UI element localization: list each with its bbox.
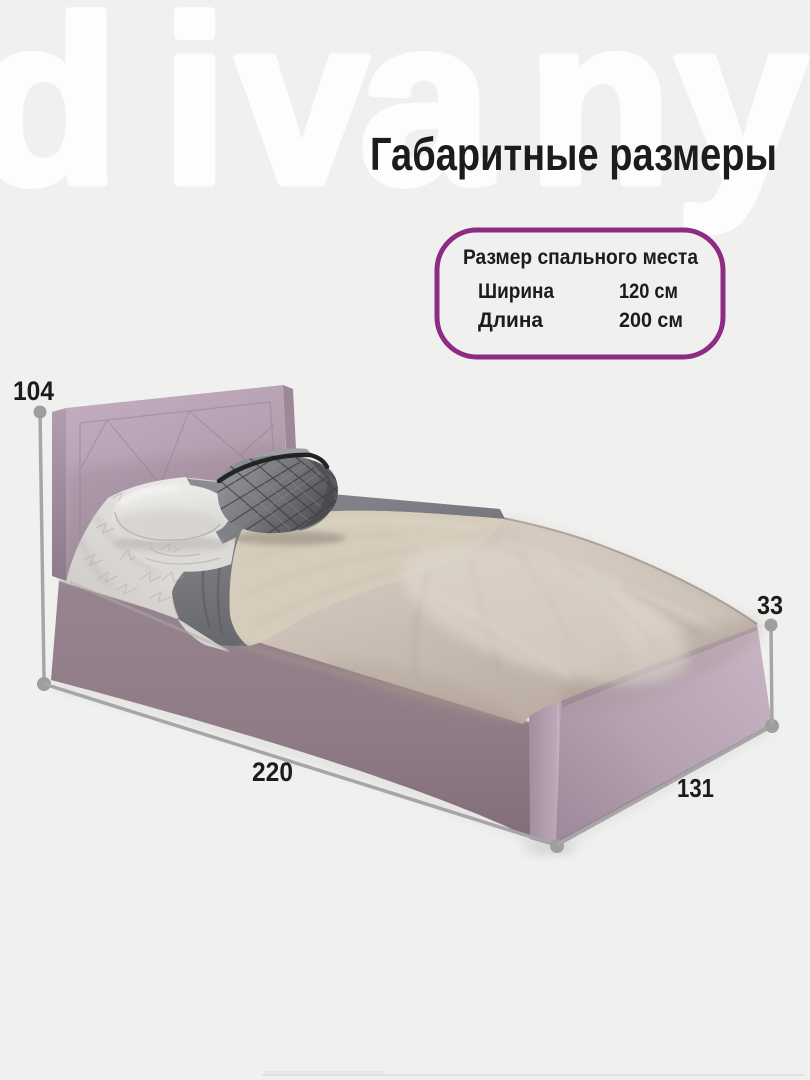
svg-text:Размер спального места: Размер спального места [463, 245, 699, 269]
svg-text:Длина: Длина [478, 309, 543, 332]
svg-text:220: 220 [252, 757, 293, 787]
svg-text:33: 33 [757, 590, 783, 620]
svg-text:Ширина: Ширина [478, 280, 554, 303]
svg-text:200 см: 200 см [619, 309, 683, 332]
svg-text:104: 104 [13, 376, 54, 406]
svg-text:120 см: 120 см [619, 280, 678, 303]
svg-text:Габаритные размеры: Габаритные размеры [370, 128, 777, 180]
svg-text:131: 131 [677, 773, 714, 803]
